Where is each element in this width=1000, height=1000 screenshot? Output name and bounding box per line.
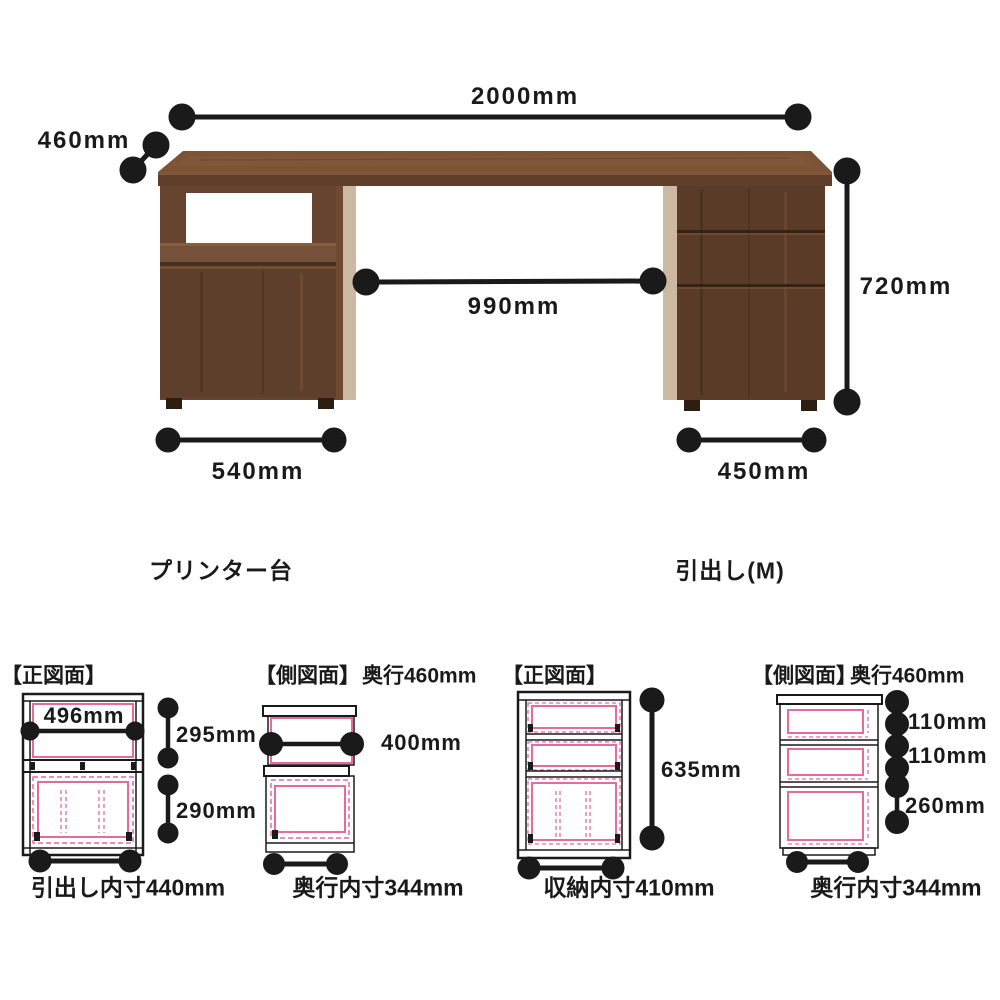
diagram-canvas bbox=[0, 0, 1000, 1000]
dim-label-shelf-inner-height: 295mm bbox=[176, 724, 257, 746]
dim-label-depth: 460mm bbox=[38, 129, 131, 153]
diagram-printer-side bbox=[260, 706, 363, 874]
dim-line-drawer-inner-width bbox=[29, 850, 141, 872]
dim-label-left-width: 540mm bbox=[212, 460, 305, 484]
dim-line-middle-drawer-height bbox=[886, 735, 908, 779]
diagram-drawer-side bbox=[777, 691, 908, 872]
dim-label-height: 720mm bbox=[860, 275, 953, 299]
dim-label-top-drawer-height: 110mm bbox=[908, 711, 988, 733]
drawer-side-header: 【側図面】 bbox=[752, 666, 857, 687]
printer-side-bottom-label: 奥行内寸344mm bbox=[292, 877, 463, 900]
dim-line-depth-inner bbox=[264, 854, 347, 874]
dim-line-shelf-inner-depth bbox=[260, 733, 363, 755]
printer-front-header: 【正図面】 bbox=[1, 666, 106, 687]
left-cabinet bbox=[160, 186, 356, 409]
printer-front-bottom-label: 引出し内寸440mm bbox=[31, 877, 225, 900]
drawer-front-bottom-label: 収納内寸410mm bbox=[543, 877, 714, 900]
printer-side-header: 【側図面】 bbox=[255, 666, 360, 687]
diagram-drawer-front bbox=[518, 688, 664, 879]
dim-line-top-drawer-height bbox=[886, 691, 908, 735]
dim-line-drawer-inner-height bbox=[158, 775, 178, 843]
desktop-grain bbox=[170, 155, 812, 166]
dim-label-bottom-drawer-height: 260mm bbox=[905, 795, 986, 817]
dim-label-shelf-inner-depth: 400mm bbox=[381, 732, 462, 754]
dim-label-knee-clearance: 990mm bbox=[468, 295, 561, 319]
dim-line-shelf-inner-height bbox=[158, 698, 178, 768]
dim-line-knee-clearance bbox=[353, 268, 666, 295]
drawer-front-header: 【正図面】 bbox=[502, 666, 607, 687]
dim-label-overall-width: 2000mm bbox=[471, 85, 579, 109]
right-cabinet-label: 引出し(M) bbox=[675, 560, 784, 583]
printer-side-depth-note: 奥行460mm bbox=[362, 666, 476, 687]
dim-label-shelf-inner-width: 496mm bbox=[44, 705, 125, 727]
dim-label-storage-inner-height: 635mm bbox=[661, 759, 742, 781]
dim-line-left-width bbox=[156, 428, 346, 452]
drawer-side-depth-note: 奥行460mm bbox=[850, 666, 964, 687]
product-dimension-diagram: 2000mm 460mm 720mm 990mm 540mm 450mm プリン… bbox=[0, 0, 1000, 1000]
right-cabinet bbox=[663, 186, 825, 411]
dim-label-drawer-inner-height: 290mm bbox=[176, 800, 257, 822]
dim-line-right-width bbox=[677, 428, 826, 452]
dim-label-right-width: 450mm bbox=[718, 460, 811, 484]
drawer-side-bottom-label: 奥行内寸344mm bbox=[810, 877, 981, 900]
dim-label-middle-drawer-height: 110mm bbox=[908, 745, 988, 767]
left-cabinet-label: プリンター台 bbox=[149, 560, 293, 583]
dim-line-height bbox=[834, 158, 860, 415]
